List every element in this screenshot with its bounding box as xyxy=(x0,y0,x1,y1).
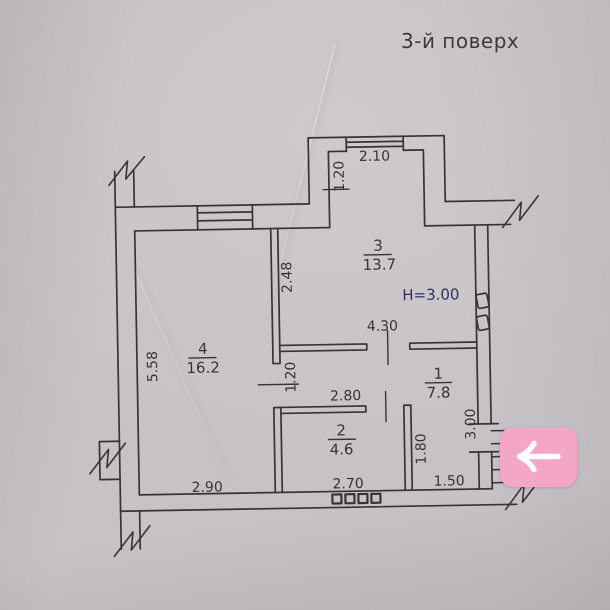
plan-texts: 2.10 1.20 2.48 4.30 5.58 1.20 2.80 1.80 … xyxy=(141,147,480,497)
dim-room3-left: 2.48 xyxy=(279,262,296,293)
room2-area: 4.6 xyxy=(329,440,353,458)
dim-entry-side: 3.00 xyxy=(463,408,480,439)
photo-of-floor-plan: 3-й поверх xyxy=(0,0,610,610)
dim-balcony-depth: 1.20 xyxy=(332,161,349,192)
dim-room4-left: 5.58 xyxy=(145,351,162,382)
vent-symbols xyxy=(476,293,490,331)
floor-plan-drawing: 2.10 1.20 2.48 4.30 5.58 1.20 2.80 1.80 … xyxy=(0,0,610,610)
dim-bottom-right: 1.50 xyxy=(433,473,464,490)
dim-room2-top: 2.80 xyxy=(330,388,361,405)
room4-number: 4 xyxy=(198,340,208,358)
dimension-ticks xyxy=(255,187,507,487)
room2-number: 2 xyxy=(336,421,346,439)
room1-area: 7.8 xyxy=(427,383,451,401)
window-room4 xyxy=(197,205,252,230)
wall-pilaster xyxy=(99,441,120,479)
height-note: H=3.00 xyxy=(402,285,460,304)
room3-number: 3 xyxy=(373,237,383,255)
dim-room4-door: 1.20 xyxy=(283,362,300,393)
dim-room2-right: 1.80 xyxy=(413,433,430,464)
threshold-squares xyxy=(332,494,380,504)
dim-bottom-mid: 2.70 xyxy=(332,476,363,493)
room3-area: 13.7 xyxy=(362,255,396,274)
dim-balcony-width: 2.10 xyxy=(359,148,390,165)
room4-area: 16.2 xyxy=(186,358,220,377)
room-label-lines xyxy=(187,253,452,442)
dim-hall-top: 4.30 xyxy=(367,318,398,335)
room1-number: 1 xyxy=(433,365,443,383)
back-button[interactable] xyxy=(500,427,577,487)
dim-bottom-left: 2.90 xyxy=(191,479,222,496)
arrow-left-icon xyxy=(500,427,577,487)
